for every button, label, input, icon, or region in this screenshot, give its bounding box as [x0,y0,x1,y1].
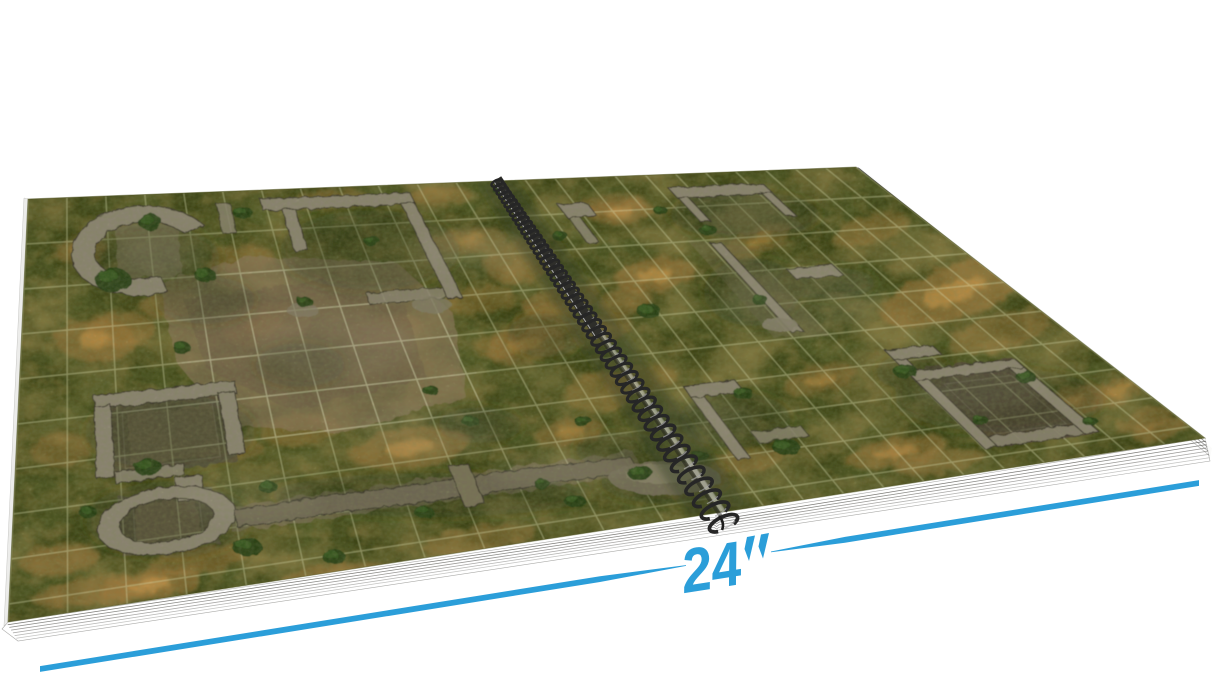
svg-text:24: 24 [676,529,747,607]
